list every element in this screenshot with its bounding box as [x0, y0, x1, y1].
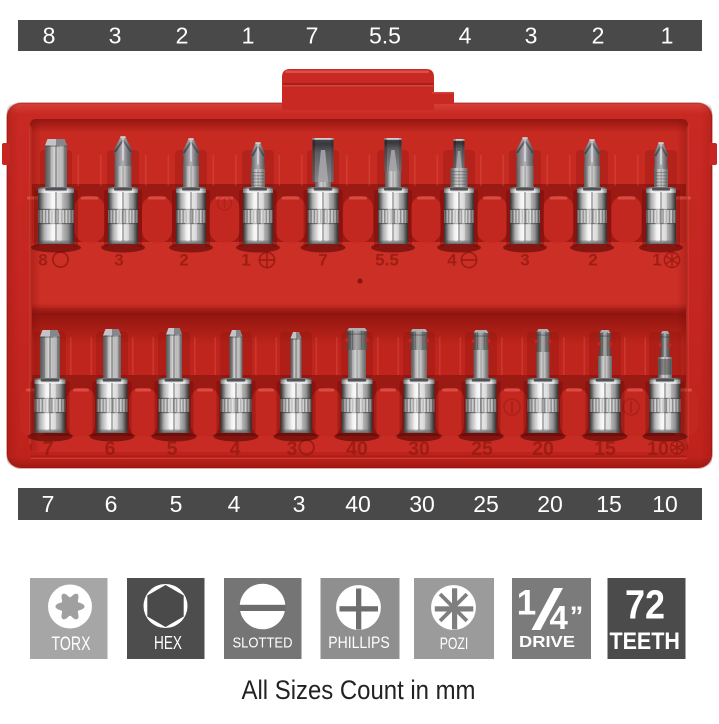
- svg-text:72: 72: [625, 582, 665, 628]
- svg-text:8: 8: [43, 23, 56, 49]
- svg-text:2: 2: [592, 23, 605, 49]
- svg-text:2: 2: [588, 251, 597, 270]
- svg-text:3: 3: [114, 251, 123, 270]
- svg-text:PHILLIPS: PHILLIPS: [328, 633, 390, 652]
- svg-text:40: 40: [345, 491, 371, 517]
- svg-text:SLOTTED: SLOTTED: [233, 636, 293, 652]
- svg-text:POZI: POZI: [440, 634, 469, 653]
- svg-text:15: 15: [596, 491, 622, 517]
- svg-text:5.5: 5.5: [369, 23, 401, 49]
- svg-text:3: 3: [525, 23, 538, 49]
- svg-text:6: 6: [105, 491, 118, 517]
- svg-text:TORX: TORX: [52, 634, 91, 655]
- svg-text:4: 4: [550, 599, 569, 636]
- svg-text:3: 3: [520, 251, 529, 270]
- svg-text:”: ”: [570, 601, 584, 631]
- svg-text:1: 1: [517, 583, 536, 622]
- svg-text:4: 4: [447, 251, 457, 270]
- svg-text:HEX: HEX: [154, 633, 182, 653]
- svg-text:1: 1: [652, 251, 661, 270]
- svg-text:7: 7: [318, 251, 327, 270]
- svg-text:DRIVE: DRIVE: [519, 634, 575, 651]
- svg-text:1: 1: [661, 23, 674, 49]
- svg-text:30: 30: [409, 491, 435, 517]
- svg-text:4: 4: [228, 491, 241, 517]
- svg-text:8: 8: [38, 251, 47, 270]
- svg-text:7: 7: [42, 491, 55, 517]
- svg-text:1: 1: [241, 251, 250, 270]
- svg-text:2: 2: [176, 23, 189, 49]
- svg-text:3: 3: [109, 23, 122, 49]
- svg-text:20: 20: [537, 491, 563, 517]
- svg-text:5.5: 5.5: [375, 251, 399, 270]
- svg-text:1: 1: [242, 23, 255, 49]
- svg-text:TEETH: TEETH: [609, 628, 680, 655]
- svg-text:All Sizes Count in mm: All Sizes Count in mm: [242, 675, 476, 705]
- svg-text:25: 25: [473, 491, 499, 517]
- svg-text:2: 2: [179, 251, 188, 270]
- svg-text:5: 5: [170, 491, 183, 517]
- svg-text:4: 4: [459, 23, 472, 49]
- svg-text:7: 7: [306, 23, 319, 49]
- svg-text:10: 10: [652, 491, 678, 517]
- svg-text:3: 3: [293, 491, 306, 517]
